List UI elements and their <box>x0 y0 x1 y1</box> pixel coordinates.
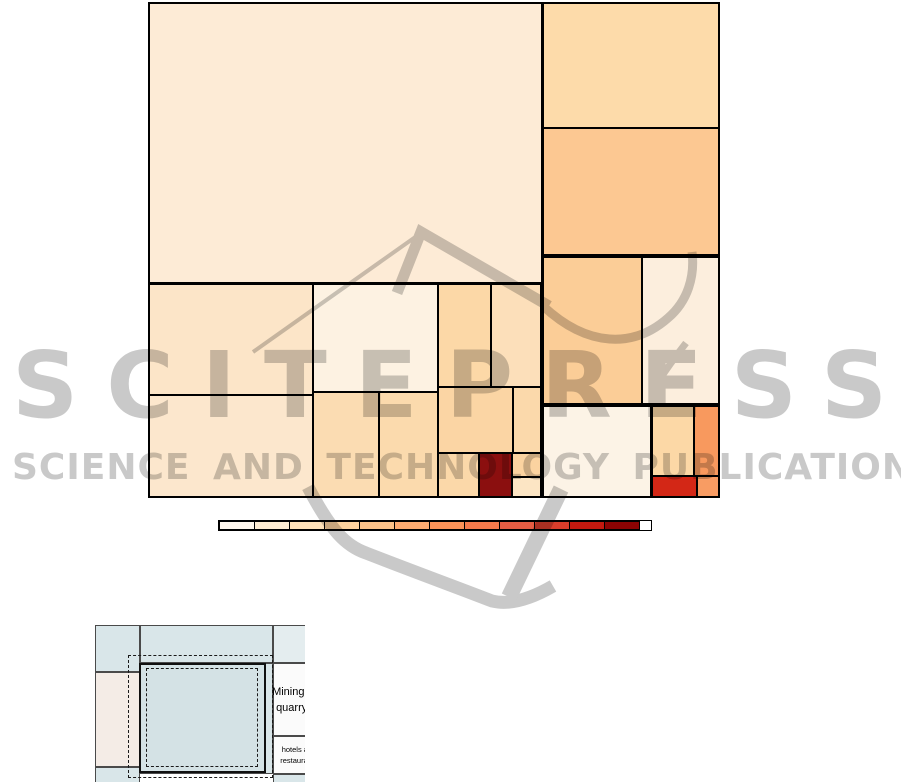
legend-color-segment <box>429 521 465 530</box>
treemap-group-outline <box>542 2 720 256</box>
treemap-group-outline <box>651 405 720 498</box>
legend-color-segment <box>289 521 325 530</box>
inset-label-mining: Mining and quarrying <box>271 665 305 735</box>
legend-color-segment <box>359 521 395 530</box>
legend-color-segment <box>569 521 605 530</box>
legend-color-segment <box>394 521 430 530</box>
legend-color-segment <box>534 521 570 530</box>
inset-cell <box>273 625 305 663</box>
legend-color-segment <box>324 521 360 530</box>
figure-page: Mining and quarryinghotels and restauran… <box>0 0 901 782</box>
legend-color-segment <box>254 521 290 530</box>
inset-zoom-figure: Mining and quarryinghotels and restauran… <box>95 625 305 782</box>
color-scale-legend <box>218 520 652 531</box>
legend-color-segment <box>464 521 500 530</box>
inset-label-hotels: hotels and restaurants <box>271 738 305 772</box>
legend-color-segment <box>499 521 535 530</box>
treemap-group-outline <box>542 256 720 405</box>
legend-color-segment <box>604 521 640 530</box>
legend-color-segment <box>219 521 255 530</box>
treemap-group-outline <box>148 283 542 498</box>
inset-dashed-rect <box>146 668 258 767</box>
inset-cell <box>273 774 305 782</box>
